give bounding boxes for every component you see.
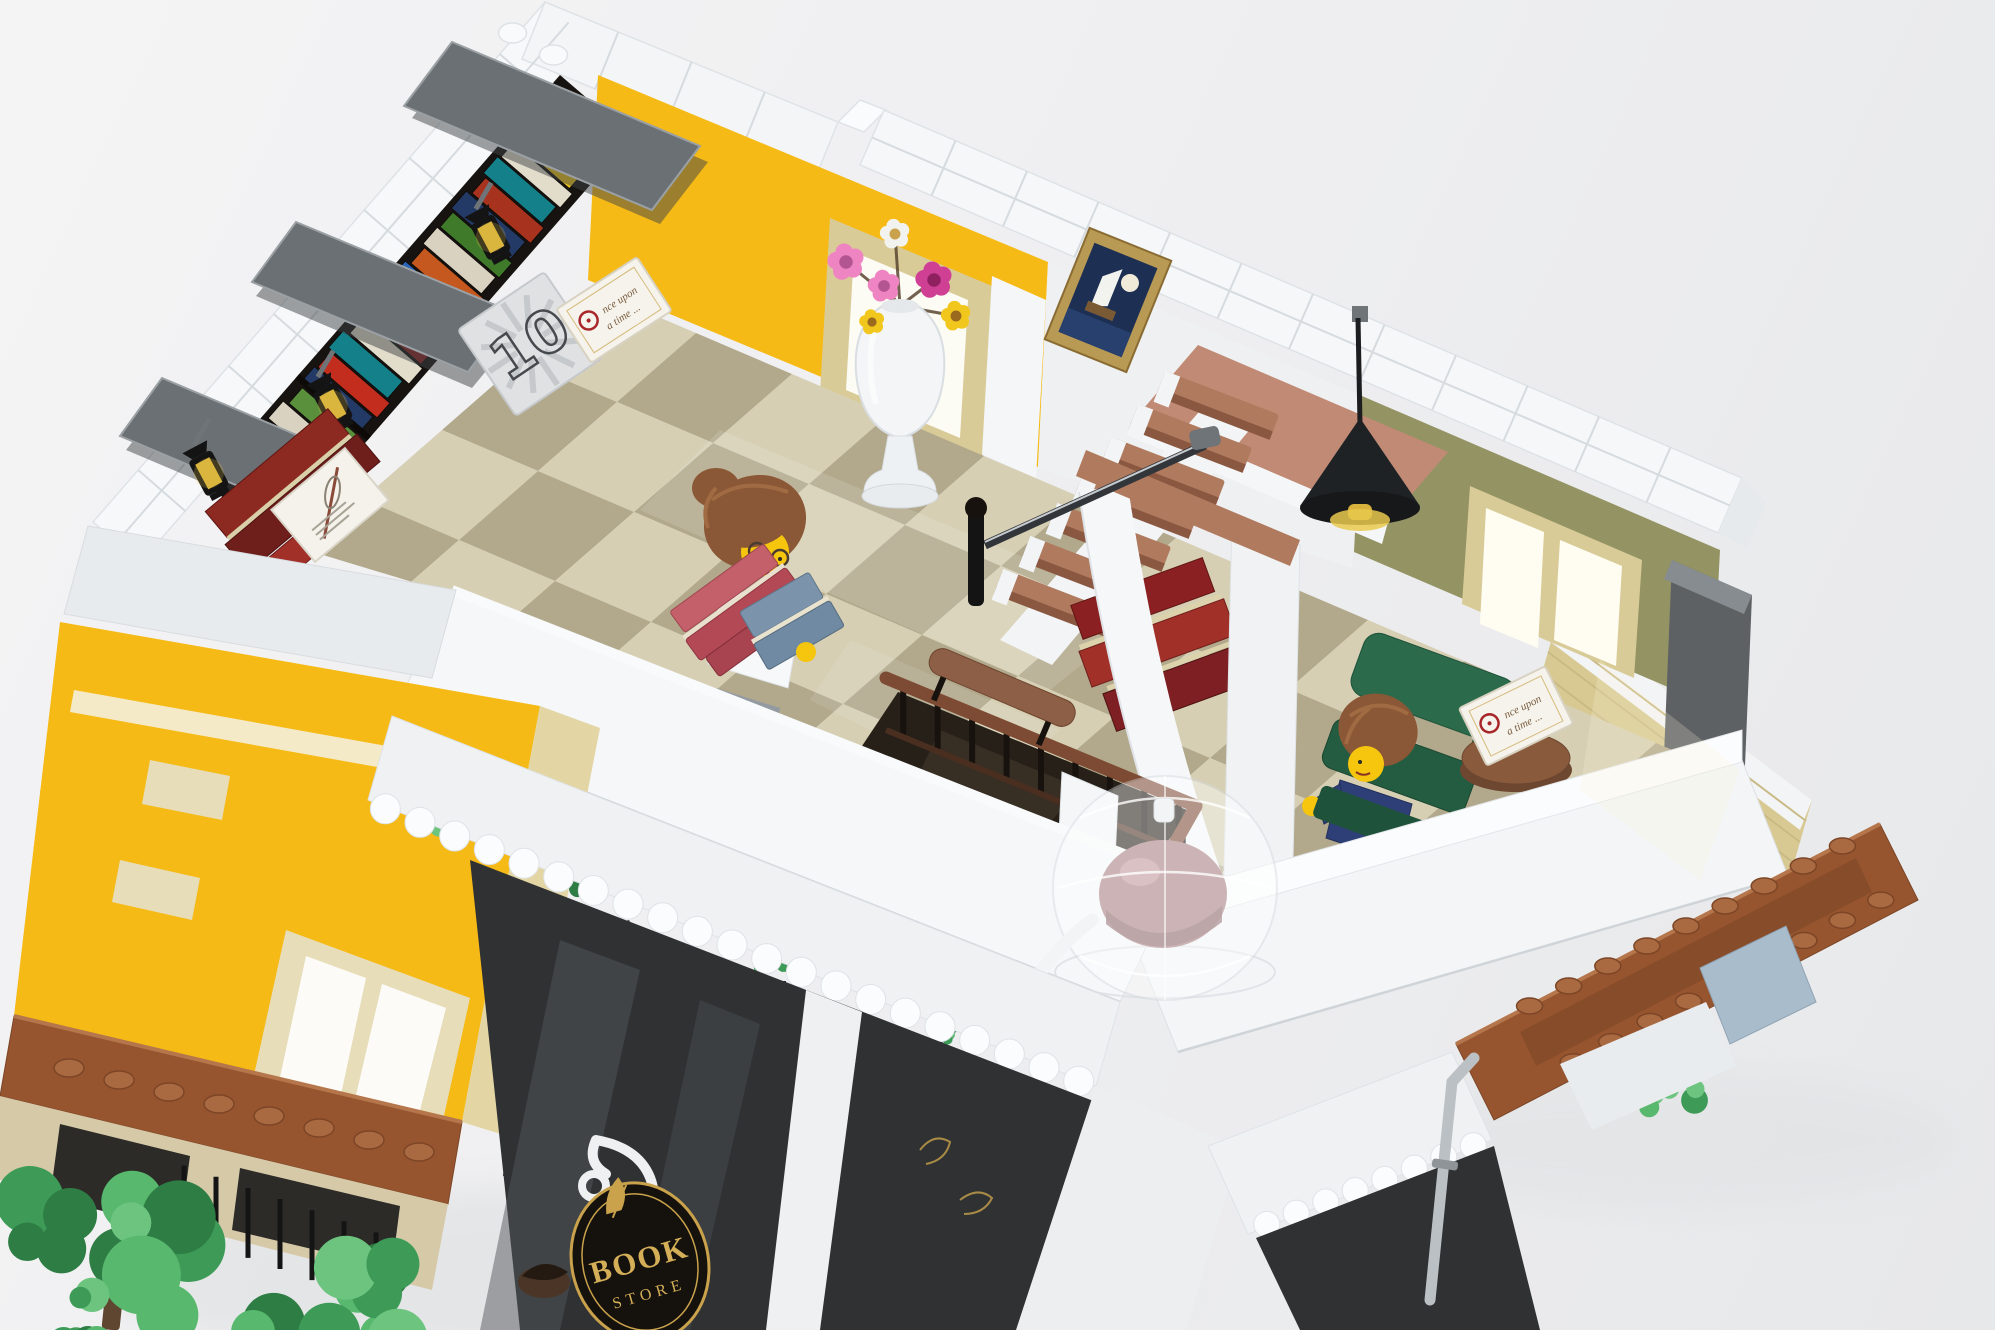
stud bbox=[499, 23, 527, 43]
leaf bbox=[8, 1223, 47, 1262]
stud bbox=[1712, 898, 1738, 914]
scallop bbox=[856, 984, 886, 1014]
stud bbox=[1829, 838, 1855, 854]
man-face bbox=[1348, 746, 1384, 782]
stud bbox=[1829, 912, 1855, 928]
leaf bbox=[366, 1238, 419, 1291]
door-trim bbox=[982, 276, 1046, 478]
scallop bbox=[960, 1025, 990, 1055]
stud bbox=[540, 45, 568, 65]
stud bbox=[1556, 978, 1582, 994]
dome-finial bbox=[1154, 798, 1174, 822]
stud bbox=[1595, 958, 1621, 974]
scallop bbox=[890, 998, 920, 1028]
scallop bbox=[682, 916, 712, 946]
stud bbox=[254, 1107, 284, 1125]
scallop bbox=[786, 957, 816, 987]
stud bbox=[1634, 938, 1660, 954]
scallop bbox=[370, 794, 400, 824]
stud bbox=[1790, 858, 1816, 874]
stud bbox=[1751, 878, 1777, 894]
stud bbox=[104, 1071, 134, 1089]
stud bbox=[304, 1119, 334, 1137]
scallop bbox=[648, 903, 678, 933]
scallop bbox=[717, 930, 747, 960]
stud bbox=[54, 1059, 84, 1077]
scallop bbox=[474, 835, 504, 865]
stud bbox=[1791, 933, 1817, 949]
scallop bbox=[752, 944, 782, 974]
scallop bbox=[440, 821, 470, 851]
scallop bbox=[613, 889, 643, 919]
scallop bbox=[405, 807, 435, 837]
scallop bbox=[925, 1012, 955, 1042]
woman-hand bbox=[796, 642, 816, 662]
stud bbox=[354, 1131, 384, 1149]
leaf bbox=[43, 1188, 97, 1242]
stud bbox=[404, 1143, 434, 1161]
leaf bbox=[70, 1287, 92, 1309]
scallop bbox=[578, 876, 608, 906]
newel-post bbox=[968, 510, 984, 606]
scene: 10 nce upon a time ... bbox=[0, 0, 1995, 1330]
lego-bookstore-render: 10 nce upon a time ... bbox=[0, 0, 1995, 1330]
stud bbox=[204, 1095, 234, 1113]
scallop bbox=[821, 971, 851, 1001]
stud bbox=[1673, 918, 1699, 934]
stud bbox=[1868, 892, 1894, 908]
scallop bbox=[544, 862, 574, 892]
stud bbox=[1517, 998, 1543, 1014]
scallop bbox=[509, 848, 539, 878]
stud bbox=[154, 1083, 184, 1101]
